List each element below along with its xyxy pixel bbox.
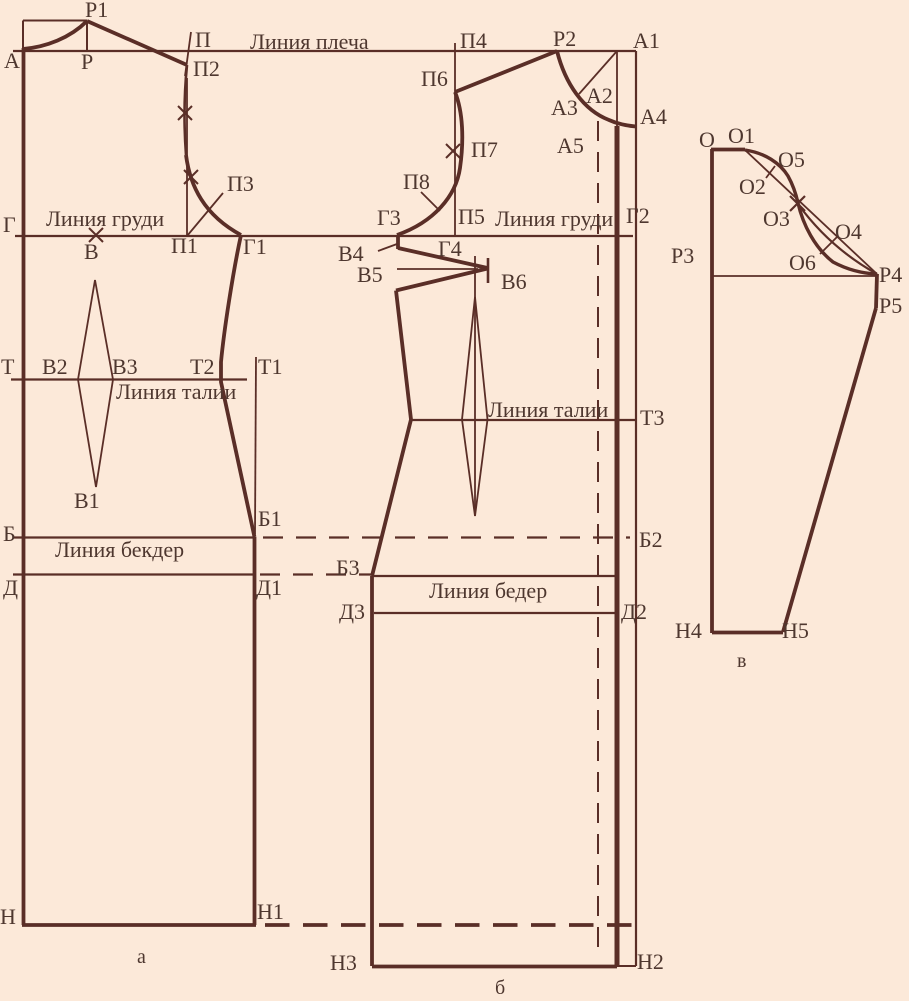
svg-text:Т: Т	[1, 354, 15, 379]
svg-text:П6: П6	[421, 66, 448, 91]
svg-text:Б3: Б3	[336, 555, 360, 580]
svg-text:П8: П8	[403, 169, 430, 194]
svg-text:Р: Р	[81, 49, 93, 74]
svg-text:А2: А2	[586, 83, 613, 108]
svg-text:Линия груди: Линия груди	[46, 206, 164, 231]
svg-text:П: П	[195, 27, 211, 52]
svg-text:О3: О3	[763, 206, 790, 231]
svg-text:Н5: Н5	[782, 618, 809, 643]
svg-text:П7: П7	[471, 137, 498, 162]
svg-text:Д2: Д2	[621, 599, 647, 624]
svg-text:Б2: Б2	[639, 527, 663, 552]
svg-text:Д: Д	[3, 575, 18, 600]
svg-text:Линия талии: Линия талии	[488, 397, 608, 422]
svg-text:В2: В2	[42, 354, 68, 379]
svg-text:Т3: Т3	[640, 405, 664, 430]
svg-text:А4: А4	[640, 104, 667, 129]
svg-text:Г: Г	[3, 212, 16, 237]
svg-text:Г4: Г4	[438, 236, 462, 261]
svg-text:Б: Б	[3, 521, 16, 546]
svg-text:П4: П4	[460, 28, 487, 53]
svg-text:Р5: Р5	[879, 293, 902, 318]
svg-text:Г2: Г2	[626, 203, 650, 228]
svg-text:О5: О5	[778, 147, 805, 172]
svg-text:Р3: Р3	[671, 243, 694, 268]
svg-text:В1: В1	[74, 488, 100, 513]
svg-text:Р2: Р2	[553, 26, 576, 51]
svg-text:Т2: Т2	[190, 354, 214, 379]
svg-text:Б1: Б1	[258, 506, 282, 531]
svg-text:Линия бекдер: Линия бекдер	[55, 537, 184, 562]
svg-text:П1: П1	[171, 233, 198, 258]
svg-text:О: О	[699, 127, 715, 152]
svg-text:О2: О2	[739, 174, 766, 199]
svg-text:Р4: Р4	[879, 262, 902, 287]
svg-text:Линия талии: Линия талии	[116, 379, 236, 404]
svg-text:А5: А5	[557, 133, 584, 158]
svg-text:Д3: Д3	[339, 599, 365, 624]
svg-text:П5: П5	[458, 204, 485, 229]
svg-text:Н: Н	[0, 904, 16, 929]
svg-text:Т1: Т1	[258, 354, 282, 379]
svg-text:О4: О4	[835, 219, 862, 244]
svg-text:В6: В6	[501, 269, 527, 294]
svg-text:Н3: Н3	[330, 950, 357, 975]
svg-text:О1: О1	[728, 123, 755, 148]
svg-text:Р1: Р1	[85, 0, 108, 22]
svg-text:Д1: Д1	[256, 575, 282, 600]
svg-text:б: б	[495, 977, 505, 999]
svg-text:П2: П2	[193, 56, 220, 81]
svg-text:а: а	[137, 946, 146, 968]
svg-text:Линия плеча: Линия плеча	[250, 29, 369, 54]
svg-text:в: в	[737, 650, 746, 672]
svg-text:В3: В3	[112, 354, 138, 379]
svg-text:Н4: Н4	[675, 618, 702, 643]
svg-text:А: А	[4, 48, 20, 73]
svg-text:Линия бедер: Линия бедер	[429, 578, 547, 603]
svg-text:А3: А3	[551, 95, 578, 120]
svg-text:Н1: Н1	[257, 899, 284, 924]
svg-text:Г3: Г3	[377, 205, 401, 230]
svg-text:А1: А1	[633, 28, 660, 53]
svg-text:Линия груди: Линия груди	[495, 206, 613, 231]
svg-text:В: В	[84, 239, 99, 264]
svg-text:П3: П3	[227, 171, 254, 196]
svg-text:Н2: Н2	[637, 949, 664, 974]
svg-text:Г1: Г1	[243, 234, 267, 259]
svg-text:В5: В5	[357, 262, 383, 287]
svg-text:О6: О6	[789, 250, 816, 275]
